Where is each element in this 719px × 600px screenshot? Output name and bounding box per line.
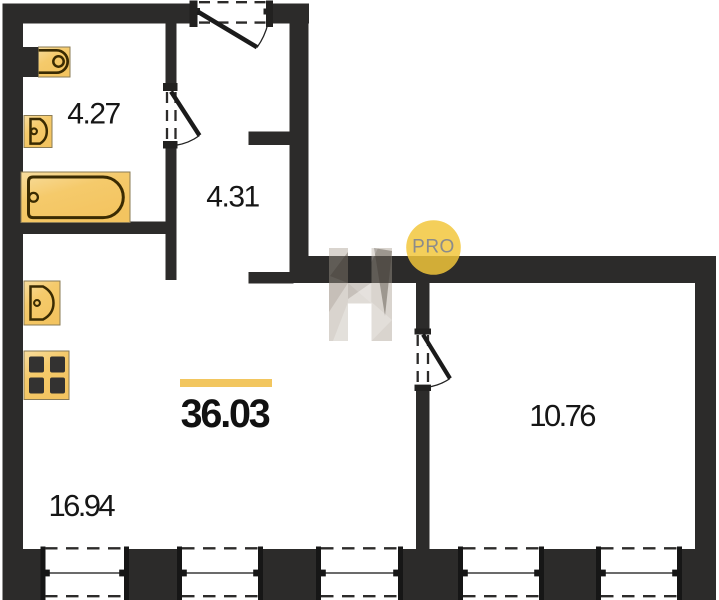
svg-text:16.94: 16.94 (49, 488, 116, 523)
svg-text:36.03: 36.03 (181, 392, 270, 436)
svg-text:10.76: 10.76 (529, 398, 595, 433)
svg-text:PRO: PRO (412, 236, 455, 257)
svg-text:4.31: 4.31 (206, 181, 259, 214)
svg-text:4.27: 4.27 (67, 97, 120, 130)
